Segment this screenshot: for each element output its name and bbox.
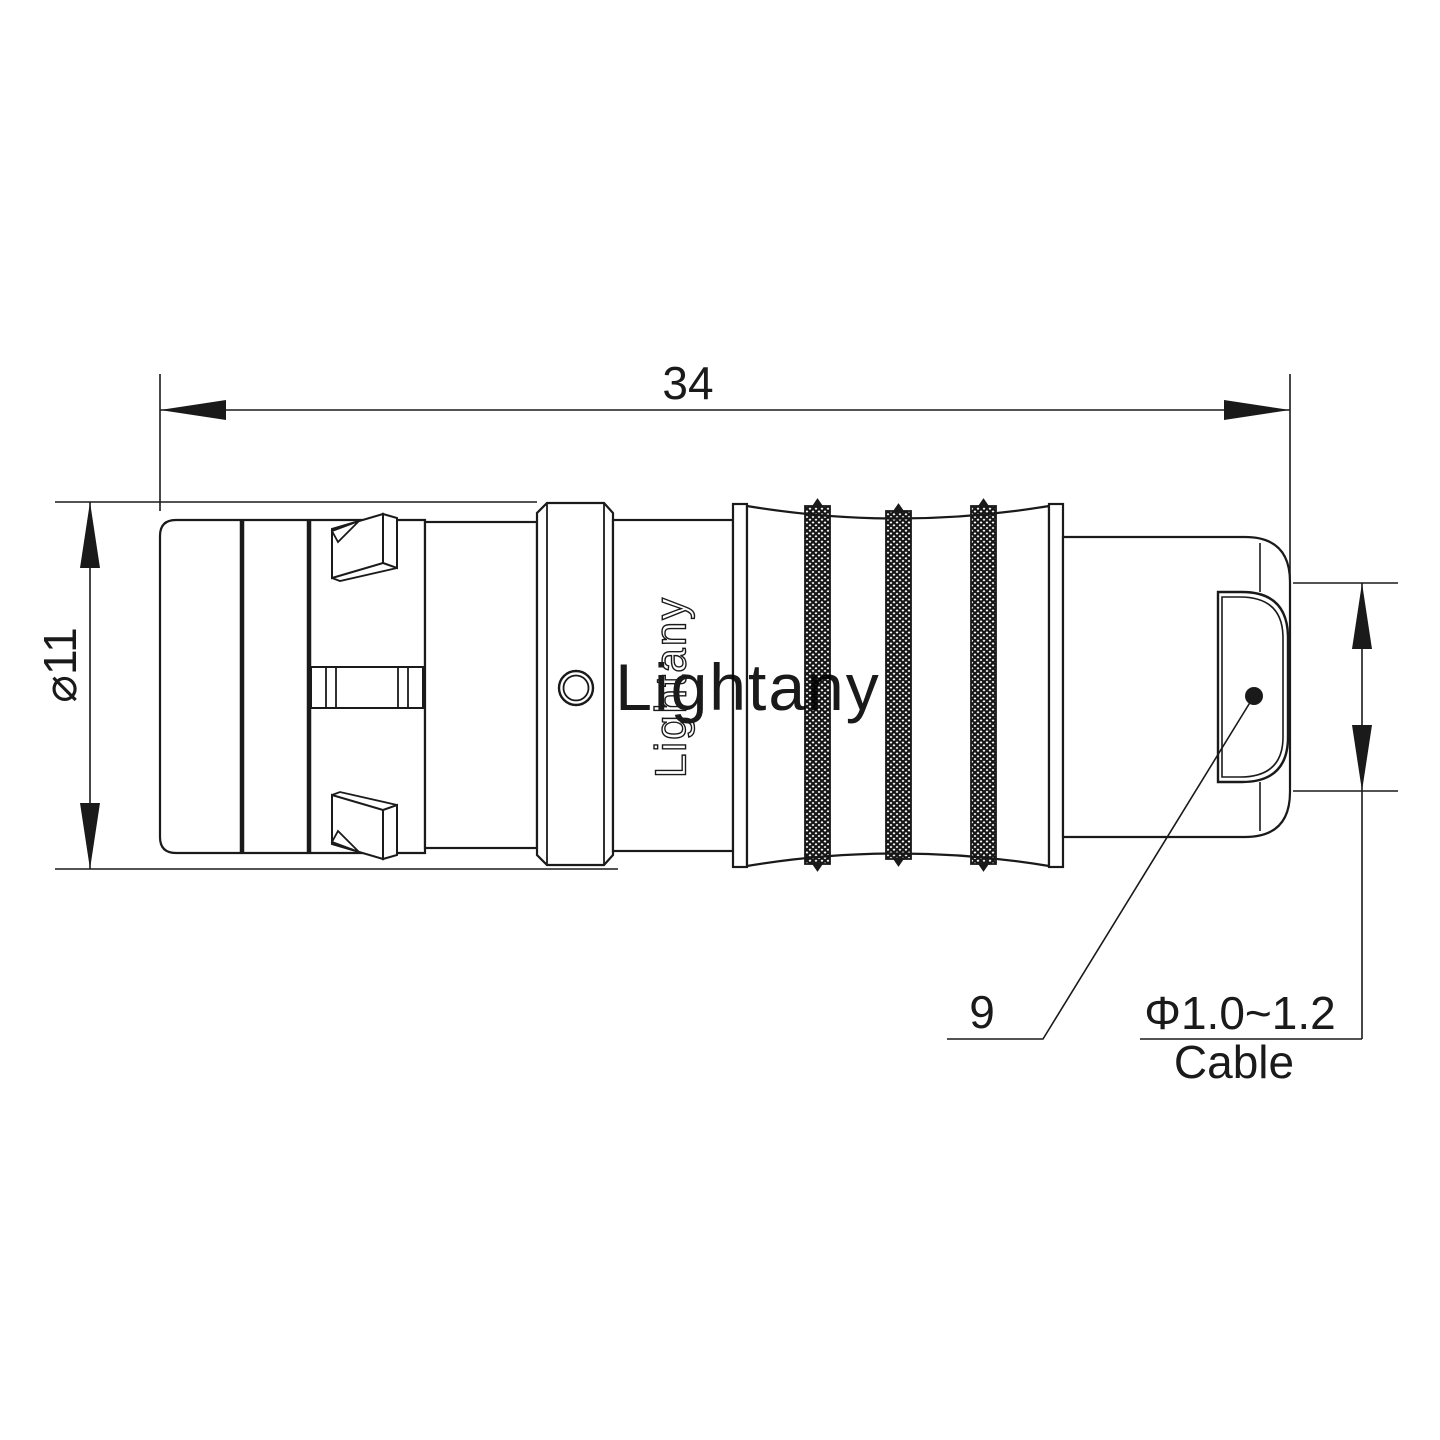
knurl-tip-top [978, 499, 989, 507]
rear-ref-text: 9 [969, 986, 995, 1038]
latch-center-rail [311, 667, 423, 708]
coupling-collar [537, 503, 613, 865]
knurl-tip-bottom [893, 858, 904, 866]
latch-end-face [383, 805, 397, 859]
knurl-band-rect [886, 511, 911, 859]
arrowhead-right [1224, 400, 1290, 420]
knurl-band-rect [971, 506, 996, 864]
knurl-band-3 [971, 499, 996, 871]
arrowhead-down [1352, 725, 1372, 791]
knurl-ring-right [1049, 504, 1063, 867]
cable-tube [1063, 537, 1290, 837]
knurl-band-2 [886, 504, 911, 866]
cable-label-text: Cable [1174, 1036, 1294, 1088]
knurl-tip-bottom [978, 863, 989, 871]
technical-drawing-canvas: Lightany Lightany 34 ⌀11 Φ1.0~1.2 Cable … [0, 0, 1440, 1440]
dimension-value-diameter: ⌀11 [34, 627, 86, 702]
barrel-front [425, 522, 537, 848]
arrowhead-down [80, 803, 100, 869]
knurl-tip-top [893, 504, 904, 512]
outer-latch-shell [160, 514, 425, 859]
arrowhead-up [1352, 583, 1372, 649]
cable-boot-outer [1218, 592, 1288, 782]
logo-engraving: Lightany [647, 596, 696, 778]
arrowhead-up [80, 502, 100, 568]
knurl-tip-bottom [812, 863, 823, 871]
arrowhead-left [160, 400, 226, 420]
latch-end-face [383, 514, 397, 568]
cable-diameter-text: Φ1.0~1.2 [1144, 987, 1335, 1039]
knurl-tip-top [812, 499, 823, 507]
dimension-value-length: 34 [662, 357, 713, 409]
